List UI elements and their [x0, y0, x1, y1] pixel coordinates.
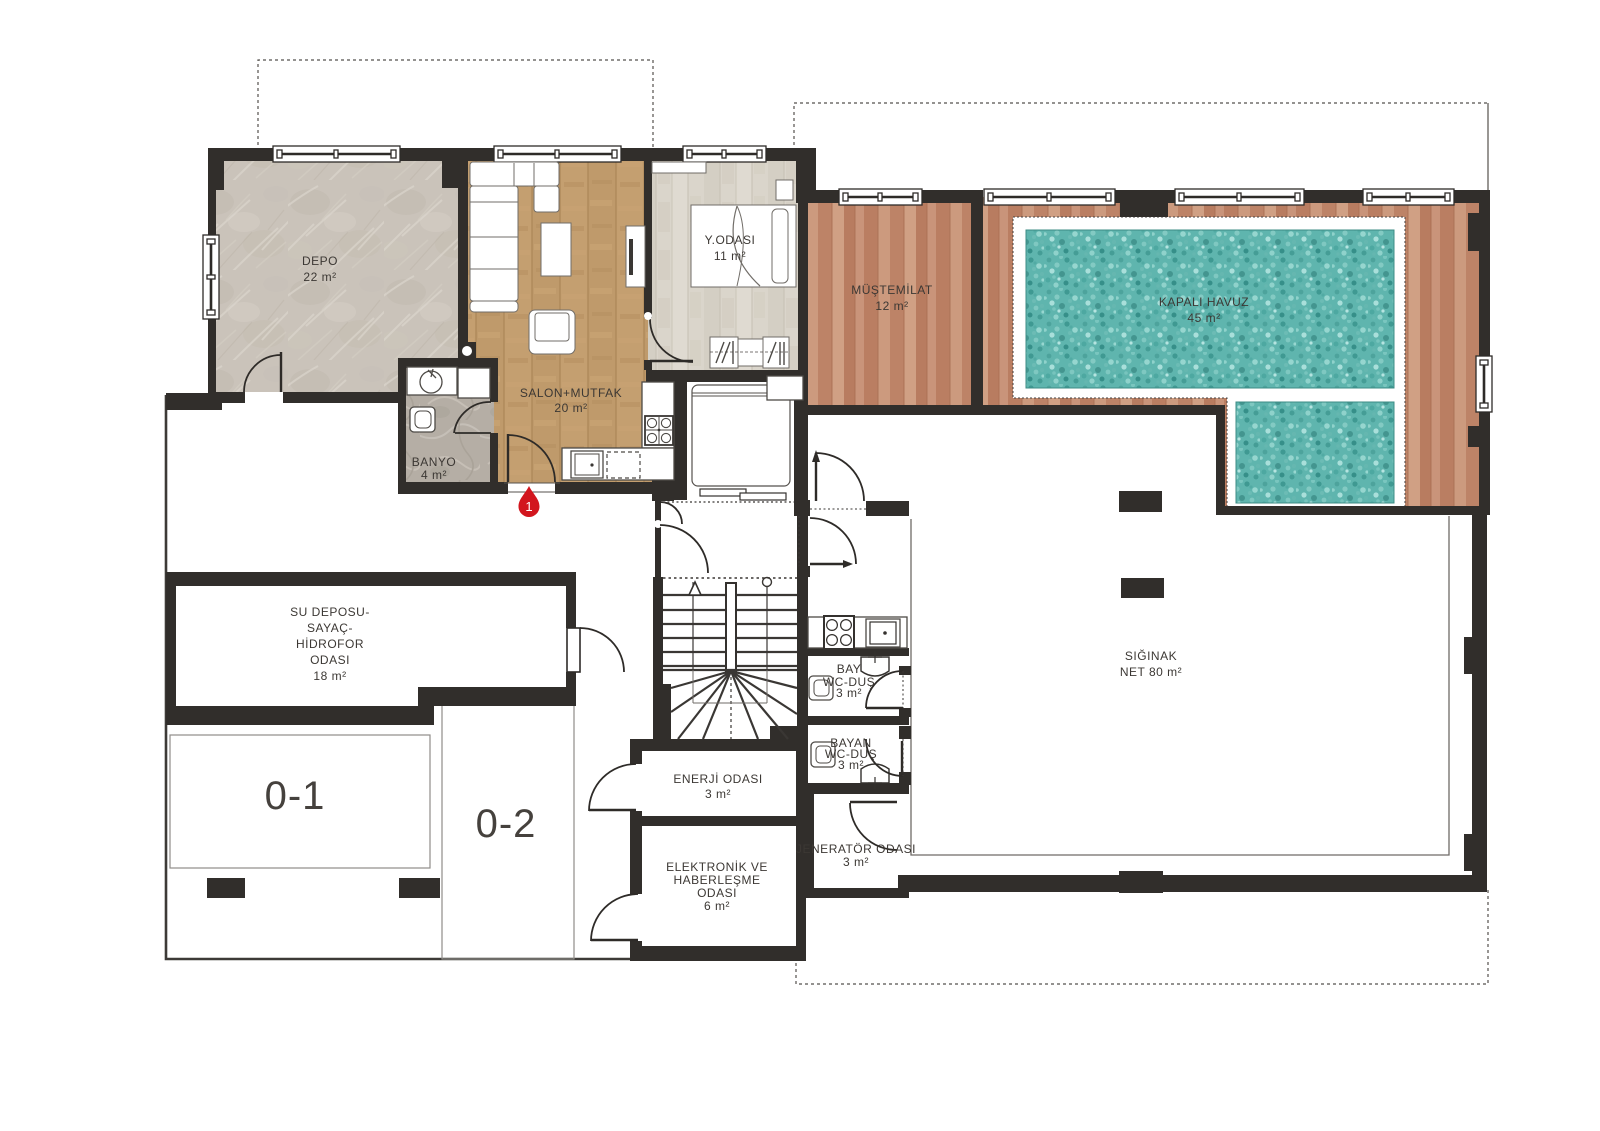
- svg-text:0-2: 0-2: [476, 802, 537, 846]
- svg-text:22 m²: 22 m²: [303, 270, 336, 284]
- svg-text:ELEKTRONİK VE: ELEKTRONİK VE: [666, 860, 768, 874]
- svg-text:4 m²: 4 m²: [421, 468, 447, 482]
- svg-text:HİDROFOR: HİDROFOR: [296, 637, 364, 651]
- svg-text:3 m²: 3 m²: [843, 855, 869, 869]
- svg-text:NET 80 m²: NET 80 m²: [1120, 665, 1182, 679]
- svg-text:18 m²: 18 m²: [313, 669, 346, 683]
- svg-text:12 m²: 12 m²: [875, 299, 908, 313]
- svg-text:3 m²: 3 m²: [836, 686, 862, 700]
- svg-text:KAPALI HAVUZ: KAPALI HAVUZ: [1159, 295, 1249, 309]
- svg-text:ENERJİ ODASI: ENERJİ ODASI: [673, 772, 762, 786]
- svg-text:45 m²: 45 m²: [1187, 311, 1220, 325]
- svg-text:3 m²: 3 m²: [838, 758, 864, 772]
- svg-text:SALON+MUTFAK: SALON+MUTFAK: [520, 386, 622, 400]
- svg-text:SU DEPOSU-: SU DEPOSU-: [290, 605, 370, 619]
- svg-text:HABERLEŞME: HABERLEŞME: [673, 873, 760, 887]
- svg-text:JENERATÖR ODASI: JENERATÖR ODASI: [796, 842, 916, 856]
- svg-text:BAY: BAY: [837, 662, 862, 676]
- svg-text:11 m²: 11 m²: [714, 249, 746, 263]
- svg-text:SIĞINAK: SIĞINAK: [1125, 648, 1177, 663]
- svg-text:20 m²: 20 m²: [554, 401, 587, 415]
- svg-text:3 m²: 3 m²: [705, 787, 731, 801]
- svg-text:BANYO: BANYO: [412, 455, 457, 469]
- svg-text:1: 1: [525, 499, 532, 514]
- svg-text:6 m²: 6 m²: [704, 899, 730, 913]
- svg-text:SAYAÇ-: SAYAÇ-: [307, 621, 353, 635]
- svg-text:MÜŞTEMİLAT: MÜŞTEMİLAT: [851, 283, 933, 297]
- svg-text:DEPO: DEPO: [302, 254, 338, 268]
- svg-text:Y.ODASI: Y.ODASI: [705, 233, 756, 247]
- svg-text:ODASI: ODASI: [310, 653, 350, 667]
- svg-text:ODASI: ODASI: [697, 886, 737, 900]
- svg-text:0-1: 0-1: [265, 774, 326, 818]
